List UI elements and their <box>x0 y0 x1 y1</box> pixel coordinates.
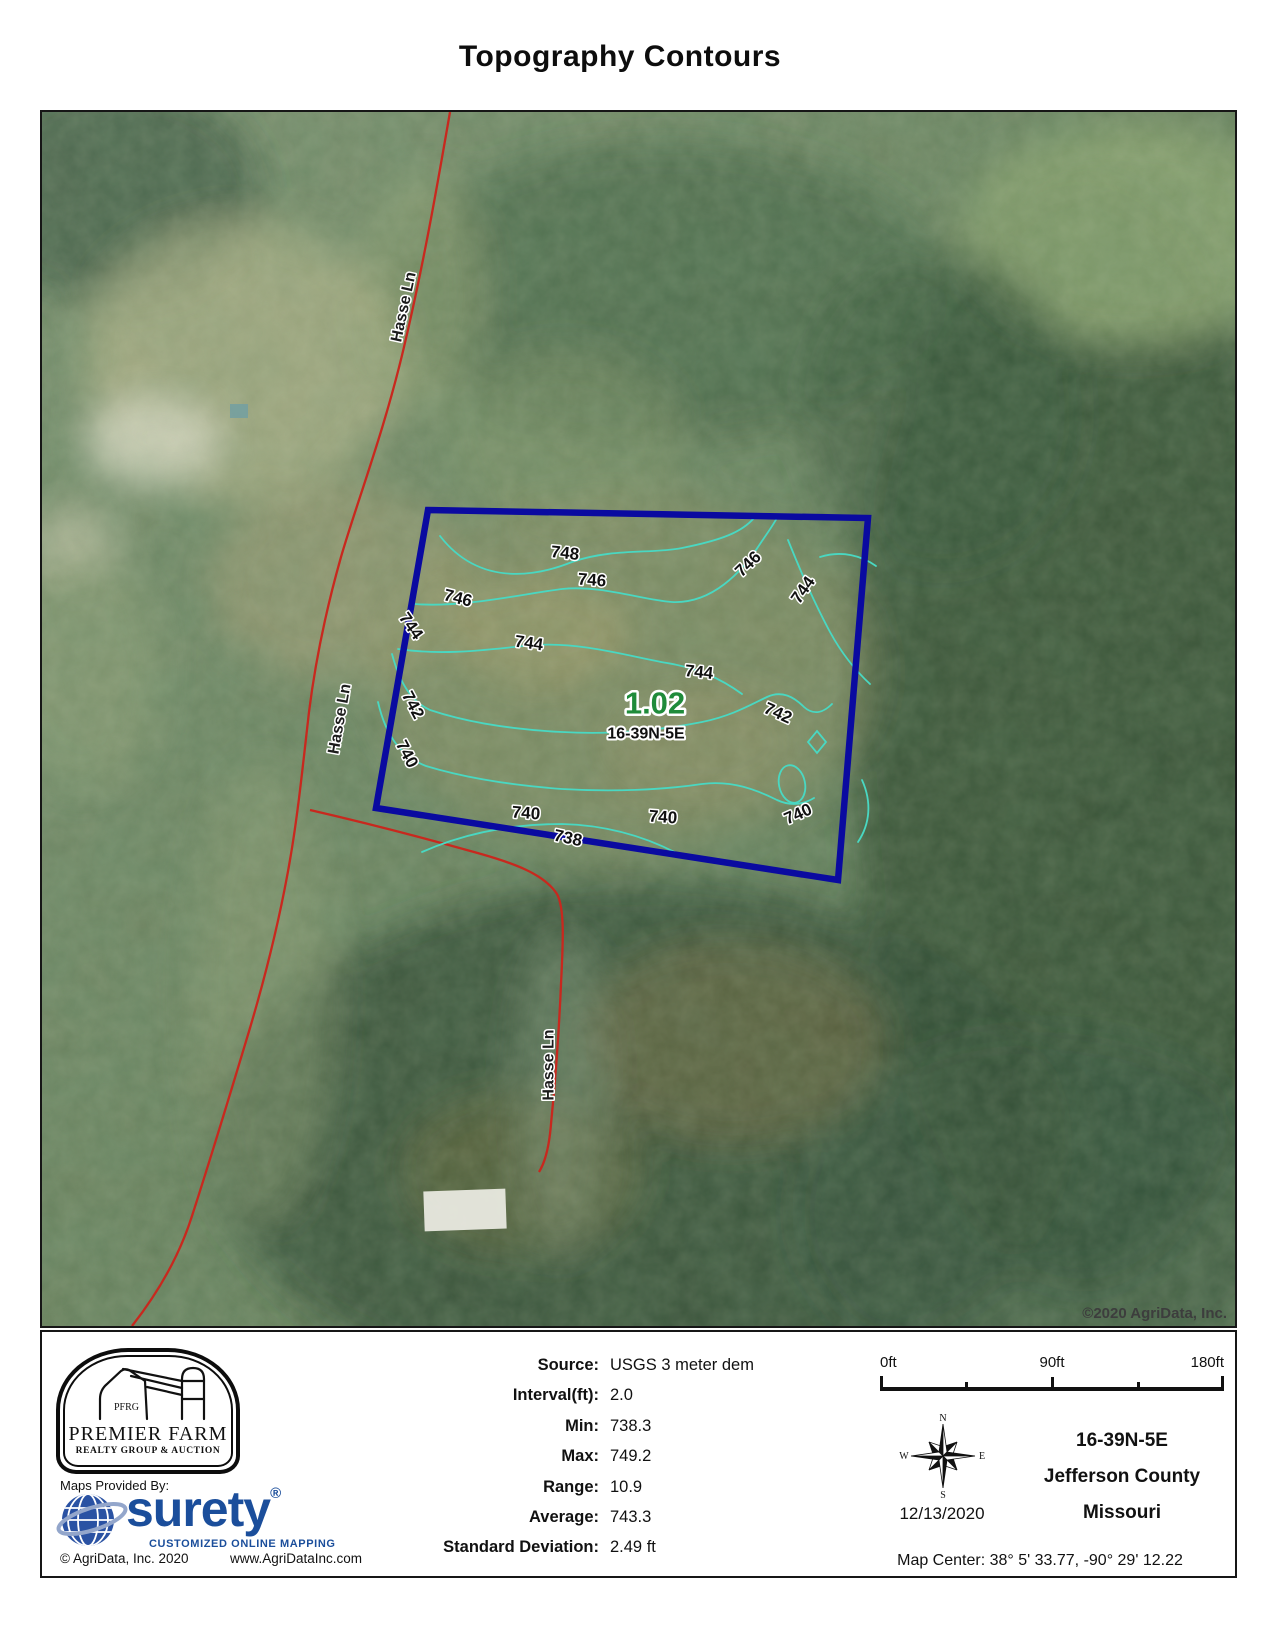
stat-row-stddev: Standard Deviation:2.49 ft <box>222 1538 842 1556</box>
contour-label: 740 <box>511 803 541 824</box>
scale-label-0ft: 0ft <box>880 1354 897 1371</box>
location-section: 16-39N-5E <box>997 1430 1247 1452</box>
stat-label: Average: <box>222 1508 599 1526</box>
scale-label-180ft: 180ft <box>1191 1354 1224 1371</box>
premier-farm-logo-border: PFRG PREMIER FARM REALTY GROUP & AUCTION <box>63 1355 233 1467</box>
map-canvas: 748 746 746 746 744 744 744 744 742 742 … <box>42 112 1235 1326</box>
stat-row-min: Min:738.3 <box>222 1417 842 1435</box>
premier-farm-tagline: REALTY GROUP & AUCTION <box>65 1446 231 1456</box>
stat-value: USGS 3 meter dem <box>610 1356 754 1374</box>
road-label-hasse-ln: Hasse Ln <box>541 1029 558 1100</box>
contour-label: 740 <box>648 807 678 828</box>
stat-row-average: Average:743.3 <box>222 1508 842 1526</box>
location-county: Jefferson County <box>997 1466 1247 1488</box>
parcel-section-label: 16-39N-5E <box>607 726 685 743</box>
agridata-copyright: © AgriData, Inc. 2020 <box>60 1551 189 1566</box>
compass-w: W <box>899 1451 909 1462</box>
compass-s: S <box>940 1490 946 1500</box>
stat-row-source: Source:USGS 3 meter dem <box>222 1356 842 1374</box>
stat-label: Standard Deviation: <box>222 1538 599 1556</box>
topography-map: 748 746 746 746 744 744 744 744 742 742 … <box>40 110 1237 1328</box>
stat-value: 749.2 <box>610 1447 651 1465</box>
stat-value: 743.3 <box>610 1508 651 1526</box>
stat-row-max: Max:749.2 <box>222 1447 842 1465</box>
map-date: 12/13/2020 <box>872 1504 1012 1524</box>
stat-value: 738.3 <box>610 1417 651 1435</box>
white-building <box>423 1189 506 1232</box>
surety-globe-icon <box>56 1490 128 1550</box>
scale-bar: 0ft 90ft 180ft <box>880 1354 1224 1394</box>
stat-label: Source: <box>222 1356 599 1374</box>
contour-label: 746 <box>577 570 607 591</box>
location-state: Missouri <box>997 1502 1247 1524</box>
premier-farm-logo: PFRG PREMIER FARM REALTY GROUP & AUCTION <box>56 1348 240 1474</box>
stat-value: 10.9 <box>610 1478 642 1496</box>
contour-label: 744 <box>514 632 545 655</box>
pfrg-initials: PFRG <box>114 1402 139 1413</box>
stat-value: 2.0 <box>610 1386 633 1404</box>
contour-label: 748 <box>550 542 580 564</box>
compass-rose-icon: N E S W <box>899 1412 987 1500</box>
scale-bar-rule <box>880 1376 1224 1391</box>
location-block: 16-39N-5E Jefferson County Missouri <box>997 1430 1247 1538</box>
barn-silo-icon: PFRG <box>70 1357 226 1421</box>
stat-label: Max: <box>222 1447 599 1465</box>
report-footer: PFRG PREMIER FARM REALTY GROUP & AUCTION… <box>40 1330 1237 1578</box>
stat-label: Interval(ft): <box>222 1386 599 1404</box>
teal-roof <box>230 404 248 418</box>
stat-label: Range: <box>222 1478 599 1496</box>
scale-label-90ft: 90ft <box>1039 1354 1064 1371</box>
stat-label: Min: <box>222 1417 599 1435</box>
parcel-area-label: 1.02 <box>625 686 685 721</box>
page-title: Topography Contours <box>0 40 1240 74</box>
compass-e: E <box>979 1451 985 1462</box>
compass-n: N <box>939 1413 946 1424</box>
contour-label: 744 <box>684 661 715 683</box>
stat-value: 2.49 ft <box>610 1538 656 1556</box>
stat-row-interval: Interval(ft):2.0 <box>222 1386 842 1404</box>
premier-farm-name: PREMIER FARM <box>65 1423 231 1446</box>
map-copyright: ©2020 AgriData, Inc. <box>1082 1305 1227 1322</box>
map-center-coordinates: Map Center: 38° 5' 33.77, -90° 29' 12.22 <box>830 1552 1250 1570</box>
stat-row-range: Range:10.9 <box>222 1478 842 1496</box>
